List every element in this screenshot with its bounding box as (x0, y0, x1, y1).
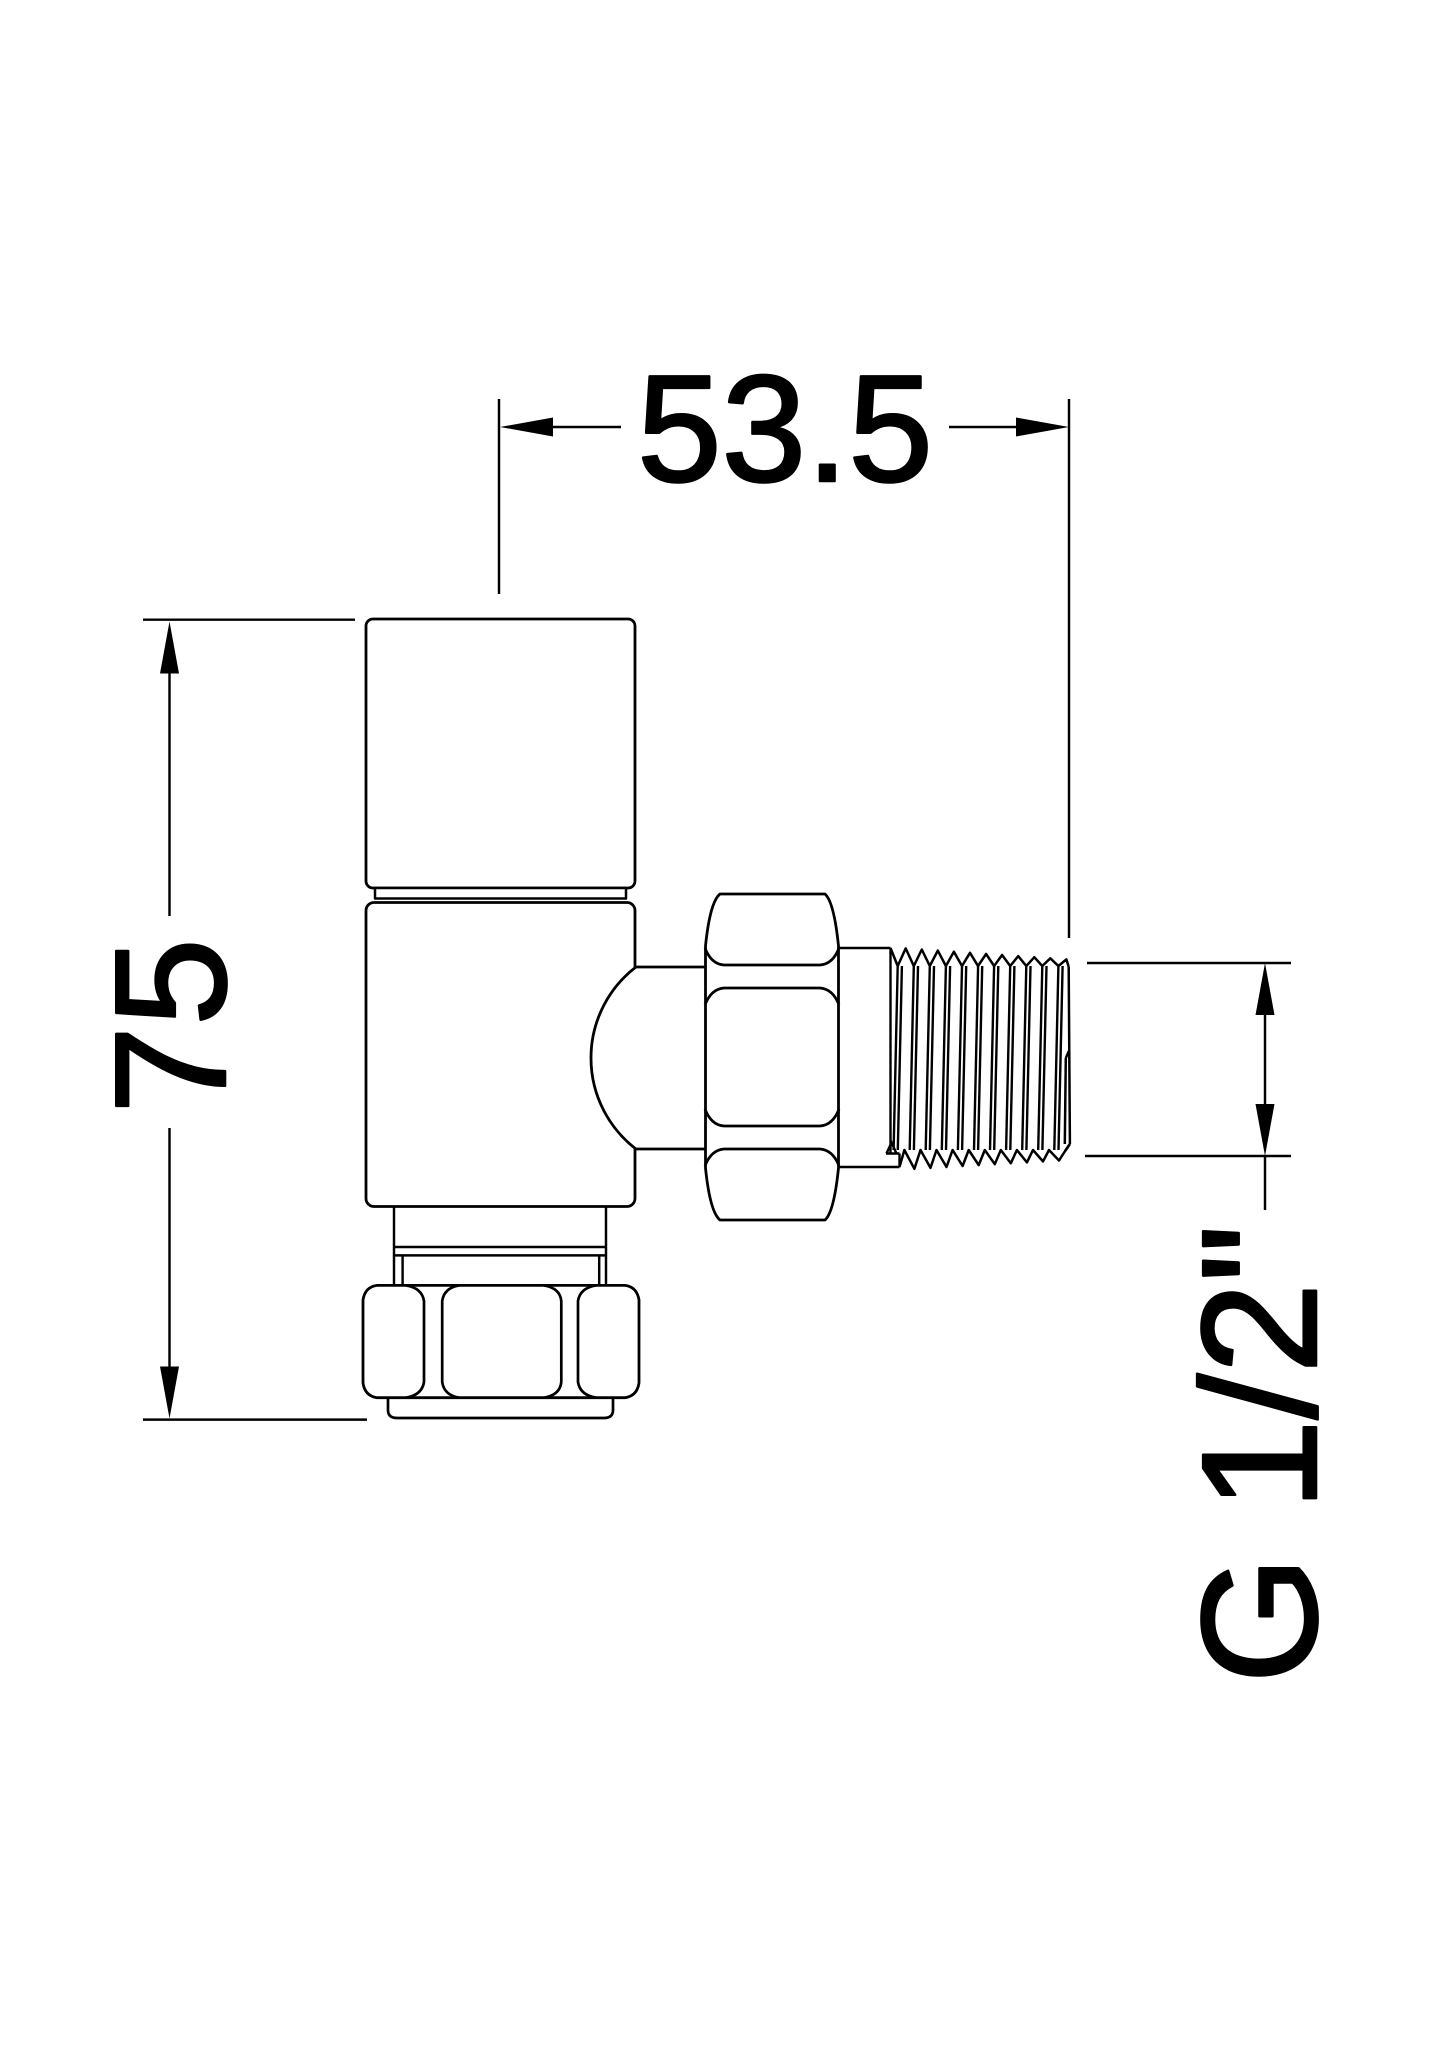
svg-text:G 1/2": G 1/2" (1168, 1224, 1351, 1683)
svg-text:75: 75 (83, 938, 259, 1114)
svg-text:53.5: 53.5 (637, 344, 933, 514)
